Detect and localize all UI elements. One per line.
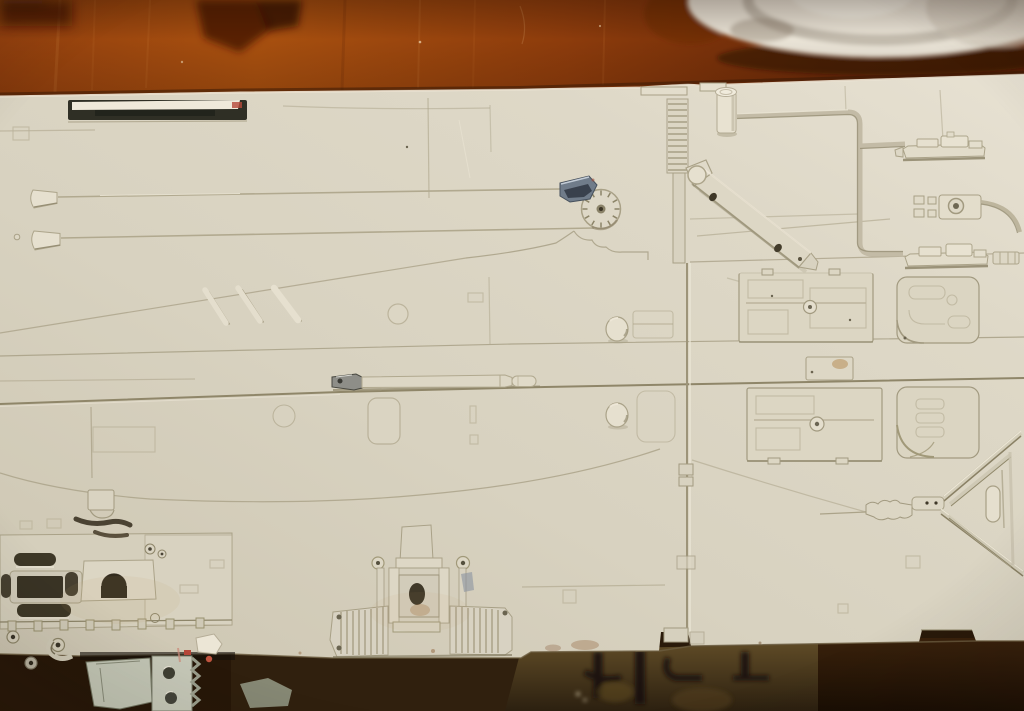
photo-of-model-panel <box>0 0 1024 711</box>
photo-vignette <box>0 0 1024 711</box>
scene <box>0 0 1024 711</box>
